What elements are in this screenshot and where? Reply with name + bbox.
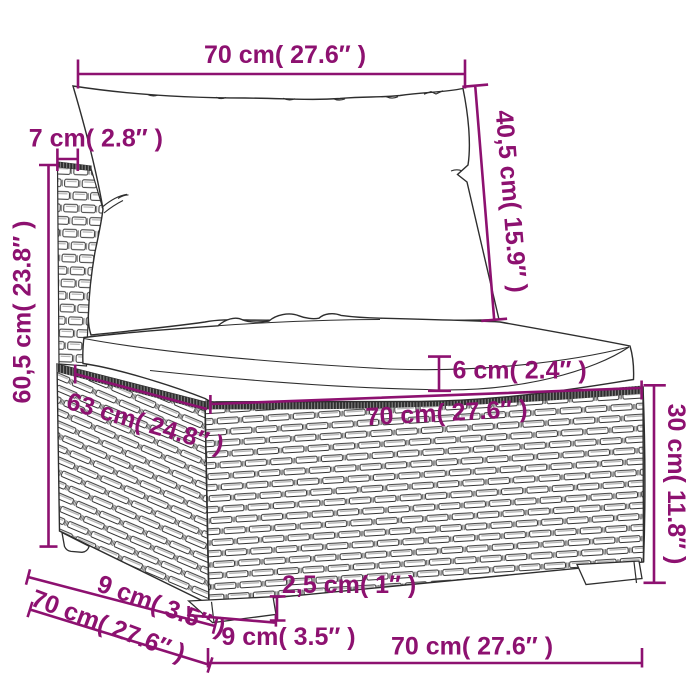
- svg-text:30 cm( 11.8″ ): 30 cm( 11.8″ ): [662, 404, 690, 565]
- svg-text:70 cm( 27.6″ ): 70 cm( 27.6″ ): [204, 41, 366, 69]
- svg-text:7 cm( 2.8″ ): 7 cm( 2.8″ ): [29, 125, 163, 153]
- svg-text:6 cm( 2.4″ ): 6 cm( 2.4″ ): [453, 357, 587, 385]
- svg-text:60,5 cm( 23.8″ ): 60,5 cm( 23.8″ ): [9, 221, 37, 404]
- svg-text:2,5 cm( 1″ ): 2,5 cm( 1″ ): [282, 571, 416, 599]
- svg-text:9 cm( 3.5″ ): 9 cm( 3.5″ ): [221, 623, 355, 651]
- svg-text:70 cm( 27.6″ ): 70 cm( 27.6″ ): [391, 633, 553, 661]
